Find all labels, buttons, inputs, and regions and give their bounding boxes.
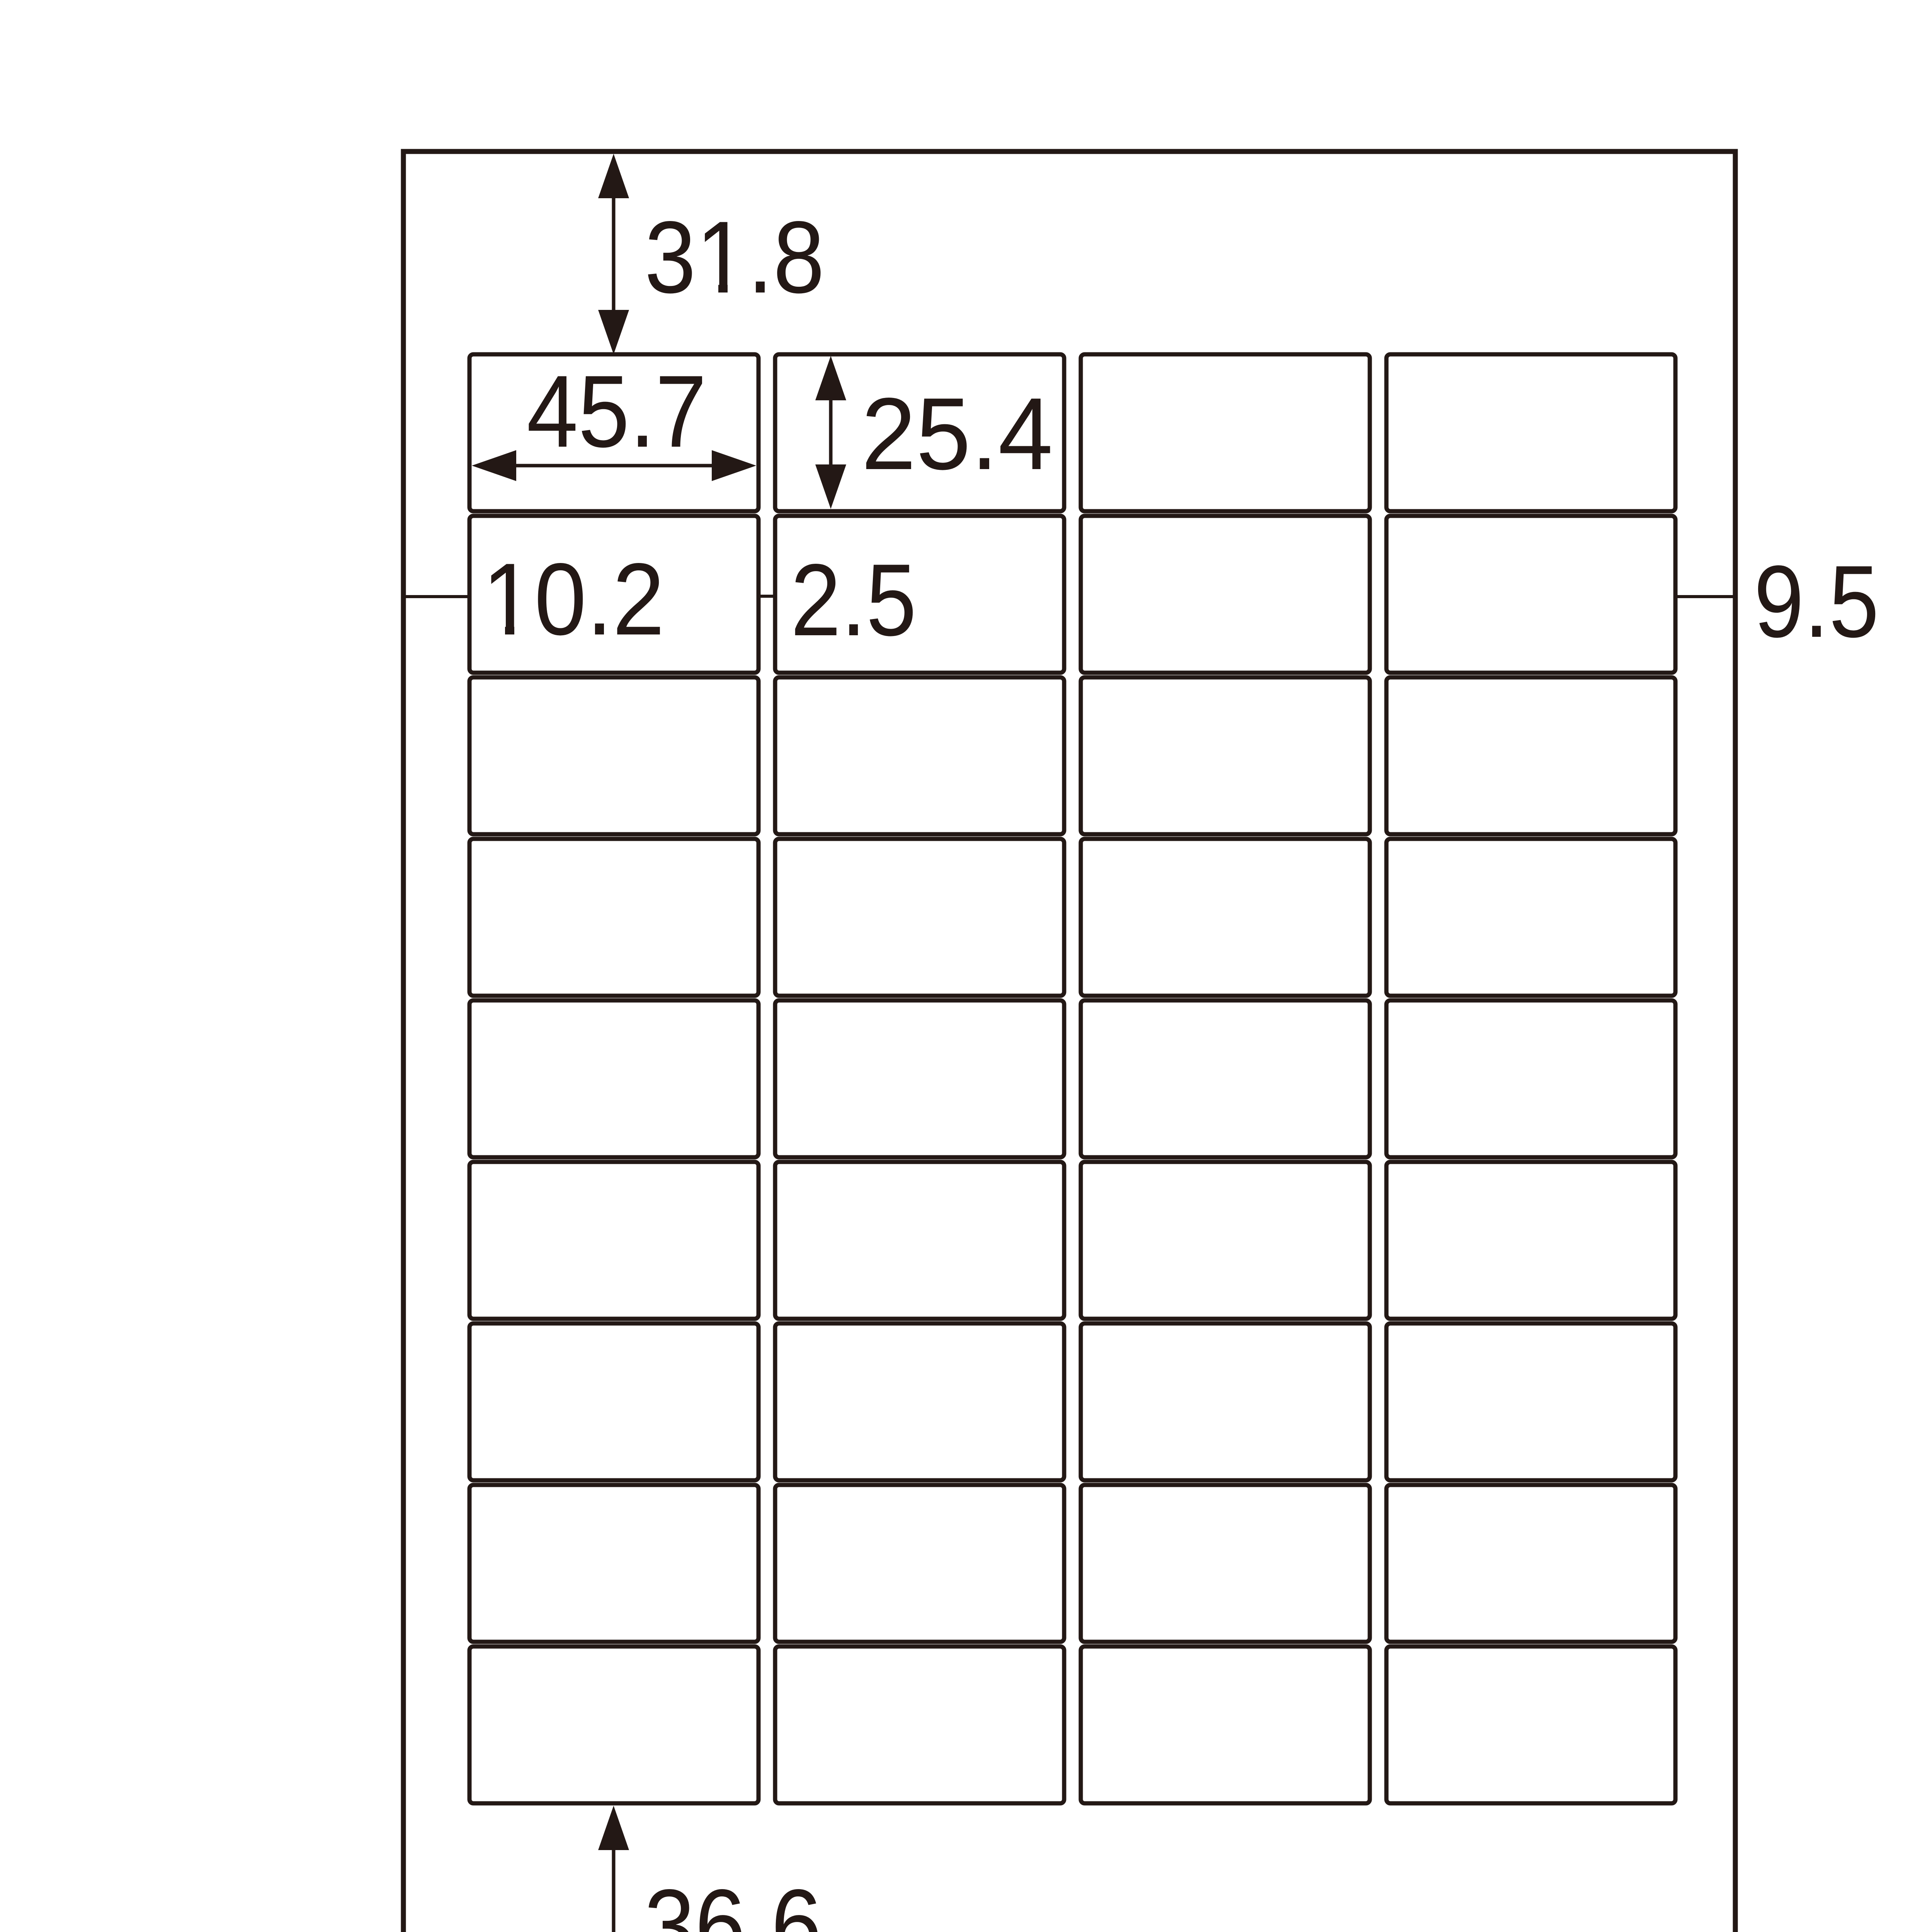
svg-text:36.6: 36.6 [644,1868,822,1932]
svg-text:10.2: 10.2 [482,542,665,656]
svg-text:45.7: 45.7 [527,354,707,469]
svg-text:31.8: 31.8 [645,200,825,315]
svg-text:9.5: 9.5 [1754,544,1879,659]
svg-text:25.4: 25.4 [861,377,1053,491]
svg-text:2.5: 2.5 [791,543,917,657]
